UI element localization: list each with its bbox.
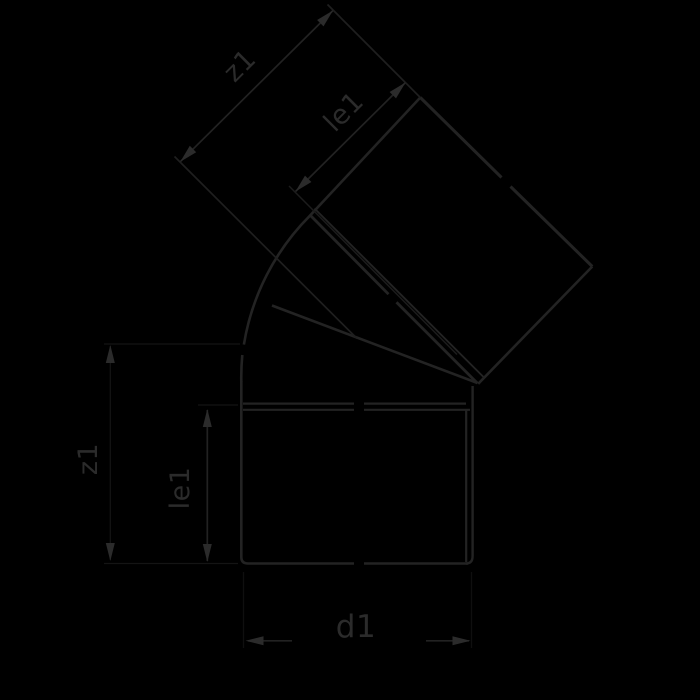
le1-diagonal-label: le1 — [318, 86, 370, 138]
d1-label: d1 — [336, 609, 376, 645]
z1-vertical-label: z1 — [73, 443, 104, 475]
dimension-arrow-icon — [453, 636, 471, 645]
diagonal-socket-mouth-edge — [511, 187, 593, 267]
fitting-outline — [241, 98, 592, 564]
mouth-extension-line — [328, 5, 421, 98]
faint-extension-lines — [104, 344, 472, 648]
le1-vertical-label: le1 — [165, 467, 196, 510]
outer-bend-arc-lower — [241, 355, 242, 382]
dimension-arrow-icon — [106, 543, 115, 561]
dimension-z1-vertical: z1 — [73, 345, 115, 561]
diagonal-socket-lower-edge — [478, 267, 592, 384]
z1-diagonal-label: z1 — [218, 44, 263, 89]
z1-center-extension-line — [175, 157, 358, 339]
dimension-arrow-icon — [106, 345, 115, 363]
dimension-le1-vertical: le1 — [165, 409, 212, 562]
diagonal-socket-depth-line — [397, 302, 478, 383]
drawing-canvas: z1 le1 z1 le1 d1 — [0, 0, 700, 700]
dimension-arrow-icon — [203, 409, 212, 427]
le1-depth-extension-line — [289, 186, 457, 355]
elbow-45-technical-drawing: z1 le1 z1 le1 d1 — [0, 0, 700, 700]
z1-diagonal-dimension-line — [180, 11, 333, 162]
diagonal-socket-depth-line — [310, 215, 389, 295]
bottom-socket-left-edge — [241, 381, 354, 564]
dimension-d1: d1 — [246, 609, 471, 645]
dimension-arrow-icon — [246, 636, 264, 645]
diagonal-socket-mouth-edge — [420, 98, 501, 178]
dimension-arrow-icon — [203, 544, 212, 562]
